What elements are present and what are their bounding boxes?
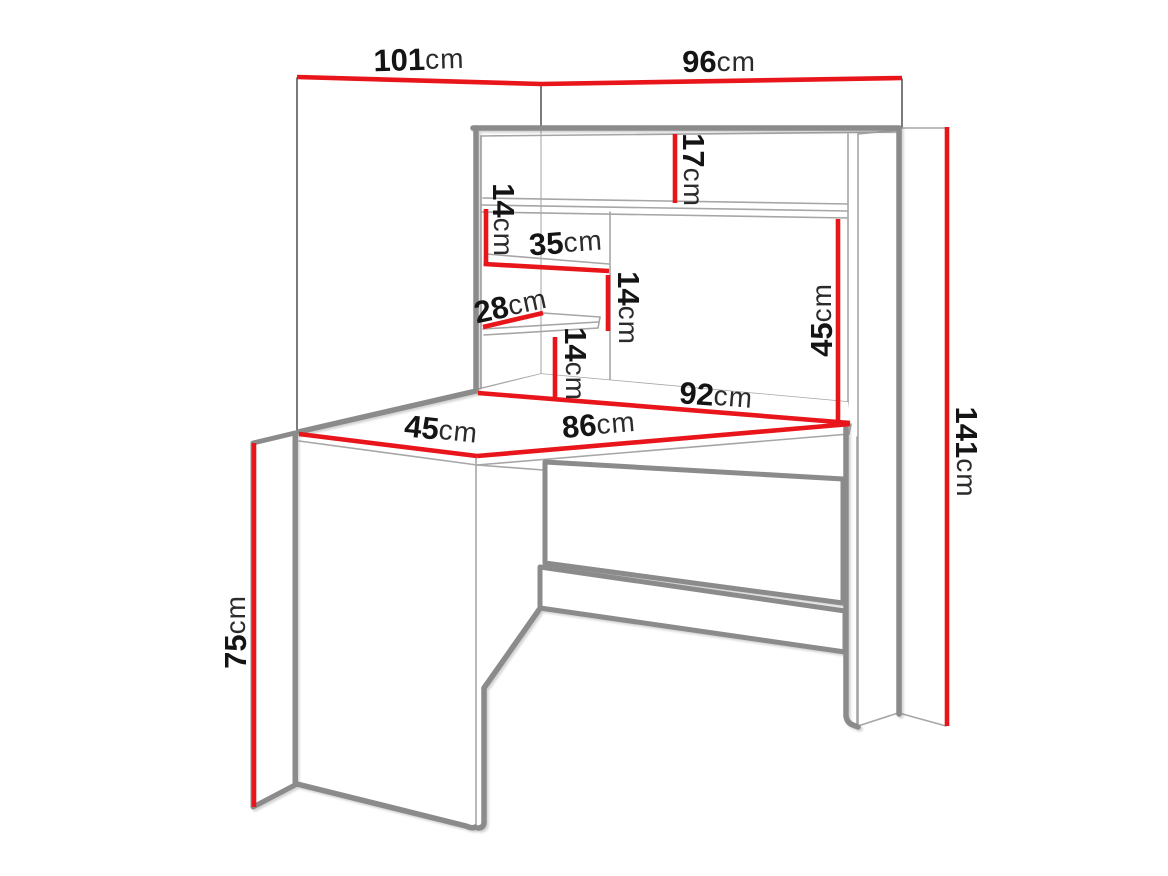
desk-underside-line bbox=[477, 465, 543, 470]
left-end-panel bbox=[253, 433, 295, 807]
dimension-diagram: 101cm 96cm 141cm 17cm 14cm 35cm 14cm 28c… bbox=[0, 0, 1168, 876]
front-panel-bottom-edge bbox=[297, 784, 475, 828]
dim-label-92cm: 92cm bbox=[678, 375, 754, 416]
dim-label-75cm: 75cm bbox=[218, 595, 253, 669]
dim-label-96cm: 96cm bbox=[682, 44, 756, 79]
dim-label-14cm-c: 14cm bbox=[558, 327, 593, 401]
dim-line-35 bbox=[484, 264, 609, 271]
middle-leg-panel bbox=[478, 607, 541, 828]
dim-line-101 bbox=[297, 77, 541, 84]
corner-desk-drawing: 101cm 96cm 141cm 17cm 14cm 35cm 14cm 28c… bbox=[0, 0, 1168, 876]
long-shelf bbox=[482, 198, 848, 218]
dim-label-17cm: 17cm bbox=[676, 133, 711, 207]
dim-line-96 bbox=[541, 78, 902, 84]
right-panel-bottom-edge bbox=[858, 713, 898, 726]
dim-label-14cm-b: 14cm bbox=[611, 271, 646, 345]
floor-tick bbox=[899, 713, 946, 726]
dim-label-28cm: 28cm bbox=[471, 281, 550, 331]
dim-label-14cm-a: 14cm bbox=[486, 183, 521, 257]
dim-label-35cm: 35cm bbox=[528, 223, 604, 263]
dim-label-101cm: 101cm bbox=[373, 41, 465, 78]
dim-label-141cm: 141cm bbox=[949, 406, 984, 497]
dim-label-45cm-shelf: 45cm bbox=[804, 283, 839, 357]
